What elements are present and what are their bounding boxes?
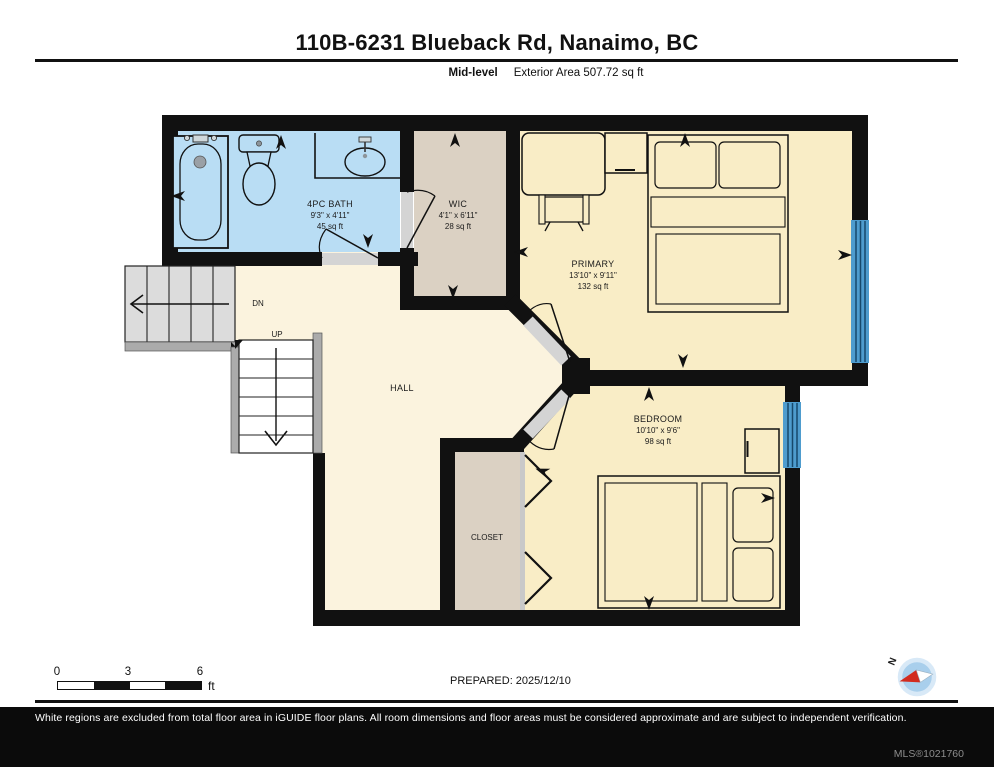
closet-opening (520, 452, 525, 610)
scale-tick-0: 0 (47, 666, 67, 678)
stairs-down-icon (125, 266, 240, 351)
wall-right-upper (852, 115, 868, 222)
bath-label: 4PC BATH (307, 199, 353, 209)
bath-door-opening (322, 253, 378, 265)
scale-segment (130, 682, 166, 689)
north-label: N (887, 656, 900, 667)
desk-icon (522, 133, 605, 195)
bedroom-window-icon (783, 402, 801, 468)
floor-plan-svg: 4PC BATH 9'3" x 4'11" 45 sq ft WIC 4'1" … (118, 100, 878, 650)
primary-area: 132 sq ft (578, 282, 609, 291)
bath-dims: 9'3" x 4'11" (311, 211, 350, 220)
wall-top (162, 115, 868, 131)
scale-unit-label: ft (208, 679, 215, 693)
primary-window-icon (851, 220, 869, 363)
wall-right-lower (852, 363, 868, 386)
bedroom-bed-icon (598, 476, 780, 608)
wall-bedroom-right-lower (785, 467, 800, 626)
wall-wic-right (506, 131, 520, 303)
wall-bottom (313, 610, 800, 626)
primary-label: PRIMARY (572, 259, 615, 269)
wall-primary-bedroom (562, 370, 868, 386)
scale-segment (165, 682, 201, 689)
floor-plan: 4PC BATH 9'3" x 4'11" 45 sq ft WIC 4'1" … (118, 100, 878, 650)
scale-tick-3: 3 (118, 666, 138, 678)
disclaimer-text: White regions are excluded from total fl… (35, 712, 965, 724)
bathtub-icon (173, 135, 228, 248)
header-divider (35, 59, 958, 62)
closet-label: CLOSET (471, 533, 503, 542)
wall-bath-wic-upper (400, 131, 414, 192)
prepared-date: PREPARED: 2025/12/10 (450, 675, 571, 687)
exterior-area-label: Exterior Area 507.72 sq ft (514, 67, 644, 79)
wall-bath-bottom-left (162, 252, 322, 266)
primary-bed-icon (648, 135, 788, 312)
scale-segment (58, 682, 94, 689)
mls-number: MLS®1021760 (894, 748, 964, 760)
scale-segment (94, 682, 130, 689)
stairs-up-icon (231, 333, 322, 453)
wic-label: WIC (449, 199, 468, 209)
bedroom-dims: 10'10" x 9'6" (636, 426, 680, 435)
scale-bar-segments (57, 681, 202, 690)
hall-label: HALL (390, 383, 414, 393)
wic-dims: 4'1" x 6'11" (439, 211, 478, 220)
bedroom-area: 98 sq ft (645, 437, 672, 446)
footer-bar: White regions are excluded from total fl… (0, 707, 994, 767)
wall-wic-bottom (400, 296, 520, 310)
wall-closet-left (440, 438, 455, 610)
nightstand-icon (745, 429, 779, 473)
stairs-down-label: DN (252, 299, 264, 308)
primary-dims: 13'10" x 9'11" (569, 271, 617, 280)
floor-subtitle: Mid-levelExterior Area 507.72 sq ft (0, 67, 994, 79)
bedroom-label: BEDROOM (634, 414, 683, 424)
scale-tick-6: 6 (190, 666, 210, 678)
stairs-up-label: UP (271, 330, 282, 339)
page-title: 110B-6231 Blueback Rd, Nanaimo, BC (0, 30, 994, 56)
level-label: Mid-level (449, 67, 498, 79)
wall-bedroom-right-upper (785, 386, 800, 403)
wic-area: 28 sq ft (445, 222, 472, 231)
footer-divider (35, 700, 958, 703)
closet-floor (455, 450, 520, 610)
wall-hall-left-lower (313, 453, 325, 610)
bath-area: 45 sq ft (317, 222, 344, 231)
dresser-icon (605, 133, 647, 173)
